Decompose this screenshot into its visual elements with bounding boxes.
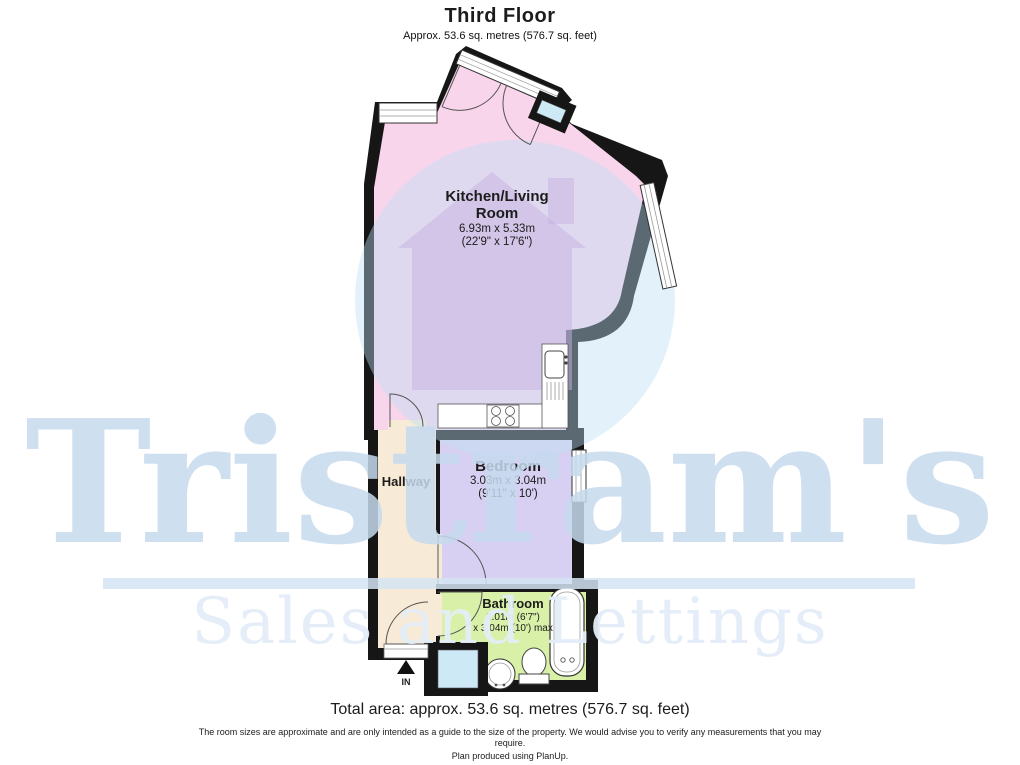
hob-icon (487, 405, 519, 427)
window-bedroom (572, 450, 586, 502)
kitchen-label: Kitchen/Living Room 6.93m x 5.33m (22'9"… (445, 188, 548, 249)
kitchen-counter-right (542, 344, 568, 428)
total-area-text: Total area: approx. 53.6 sq. metres (576… (0, 701, 1020, 719)
kitchen-counter-bottom (438, 404, 544, 428)
disclaimer-inner: The room sizes are approximate and are o… (190, 727, 830, 750)
bathtub-icon (550, 588, 584, 676)
entrance-arrow-icon (397, 660, 415, 674)
cupboard-recess (424, 642, 488, 696)
produced-by-text: Plan produced using PlanUp. (0, 751, 1020, 761)
bathroom-dims-line1: 2.01m (6'7") (473, 612, 553, 624)
entrance-in-label: IN (402, 677, 411, 687)
bathroom-label: Bathroom 2.01m (6'7") x 3.04m (10') max (473, 597, 553, 635)
basin-icon (485, 659, 515, 689)
bedroom-dims-imperial: (9'11" x 10') (470, 488, 546, 501)
kitchen-dims-metric: 6.93m x 5.33m (445, 223, 548, 236)
disclaimer-text: The room sizes are approximate and are o… (0, 727, 1020, 750)
bedroom-dims-metric: 3.03m x 3.04m (470, 475, 546, 488)
floorplan-page: Third Floor Approx. 53.6 sq. metres (576… (0, 0, 1020, 765)
bathroom-door-opening (426, 594, 442, 636)
bathroom-dims-line2: x 3.04m (10') max (473, 623, 553, 635)
bedroom-label: Bedroom 3.03m x 3.04m (9'11" x 10') (470, 458, 546, 502)
bedroom-door-opening (426, 534, 442, 584)
entrance-threshold (384, 644, 428, 658)
kitchen-dims-imperial: (22'9" x 17'6") (445, 236, 548, 249)
floor-plan-svg (0, 0, 1020, 765)
kitchen-name-line1: Kitchen/Living (445, 188, 548, 205)
bedroom-name: Bedroom (470, 458, 546, 475)
kitchen-name-line2: Room (445, 205, 548, 222)
hallway-label: Hallway (382, 475, 430, 490)
window-top-left (379, 103, 437, 123)
bathroom-name: Bathroom (473, 597, 553, 612)
